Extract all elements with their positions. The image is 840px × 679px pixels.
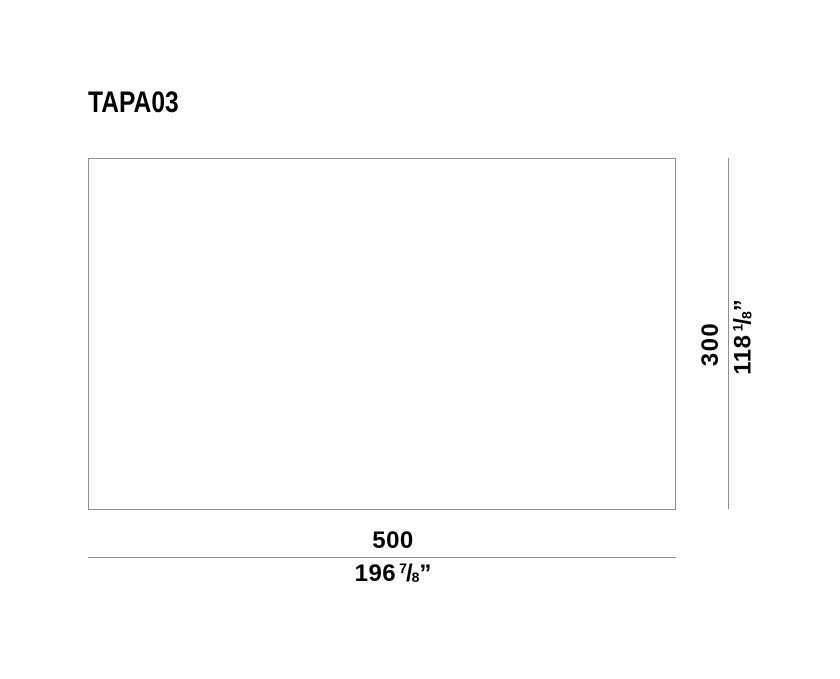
- inch-mark: ”: [730, 299, 757, 311]
- dimension-diagram: TAPA03 300 1181/8” 500 1967/8”: [0, 0, 840, 679]
- height-inch-label: 1181/8”: [731, 299, 756, 374]
- height-mm-label: 300: [699, 322, 723, 367]
- height-inch-whole: 118: [730, 335, 757, 375]
- inch-mark: ”: [419, 560, 431, 587]
- width-dimension-line: [88, 557, 676, 558]
- height-inch-denominator: 8: [739, 311, 755, 319]
- width-inch-denominator: 8: [412, 569, 420, 585]
- width-inch-label: 1967/8”: [355, 561, 432, 586]
- width-inch-whole: 196: [355, 560, 397, 587]
- product-title: TAPA03: [88, 88, 179, 118]
- width-mm-label: 500: [372, 529, 414, 553]
- height-inch-numerator: 1: [730, 324, 746, 332]
- height-dimension-line: [728, 158, 729, 509]
- tabletop-outline-rectangle: [88, 158, 676, 510]
